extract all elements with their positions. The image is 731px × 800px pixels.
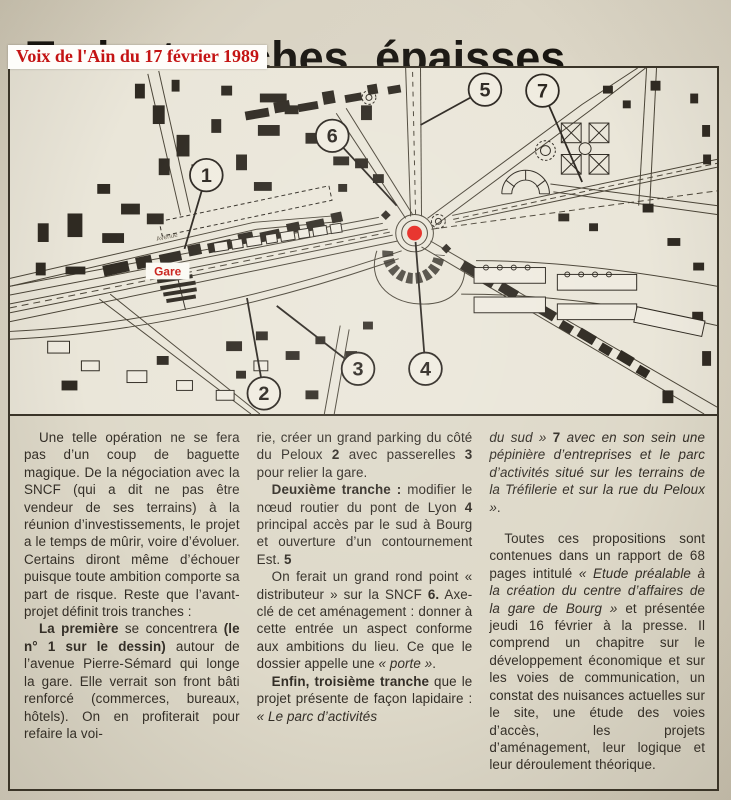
gare-label: Gare bbox=[146, 263, 190, 280]
map-svg: Avenue Gare 1234567 bbox=[10, 68, 717, 414]
avenue-street-label: Avenue bbox=[156, 232, 179, 243]
article-paragraph: La première se concentrera (le n° 1 sur … bbox=[24, 620, 240, 742]
marker-3-number: 3 bbox=[353, 359, 364, 381]
press-stamp: Voix de l'Ain du 17 février 1989 bbox=[8, 45, 267, 69]
gare-label-text: Gare bbox=[154, 264, 182, 278]
red-dot-marker bbox=[407, 226, 422, 241]
article-paragraph: Deuxième tranche : modifier le nœud rout… bbox=[257, 481, 473, 568]
article-columns: Une telle opération ne se fera pas d’un … bbox=[10, 418, 717, 789]
marker-5-number: 5 bbox=[479, 80, 490, 102]
newspaper-scan: Trois tranches épaisses Voix de l'Ain du… bbox=[0, 0, 731, 800]
column-1: Une telle opération ne se fera pas d’un … bbox=[24, 429, 240, 783]
article-paragraph: Enfin, troisième tranche que le projet p… bbox=[257, 673, 473, 725]
article-paragraph: Toutes ces propositions sont contenues d… bbox=[489, 530, 705, 774]
garden-features bbox=[362, 91, 611, 279]
building-blocks bbox=[36, 80, 711, 403]
marker-4-leader bbox=[416, 242, 426, 369]
marker-6-number: 6 bbox=[327, 126, 338, 148]
marker-1-number: 1 bbox=[201, 165, 212, 187]
article-paragraph: rie, créer un grand parking du côté du P… bbox=[257, 429, 473, 481]
marker-2-number: 2 bbox=[258, 383, 269, 405]
column-3: du sud » 7 avec en son sein une pépinièr… bbox=[489, 429, 705, 783]
column-2: rie, créer un grand parking du côté du P… bbox=[257, 429, 473, 783]
article-frame: Avenue Gare 1234567 Une telle opération … bbox=[8, 66, 719, 791]
article-paragraph: On ferait un grand rond point « distribu… bbox=[257, 568, 473, 672]
map-panel: Avenue Gare 1234567 bbox=[10, 68, 717, 416]
marker-4-number: 4 bbox=[420, 359, 431, 381]
article-paragraph: Une telle opération ne se fera pas d’un … bbox=[24, 429, 240, 620]
marker-7-number: 7 bbox=[537, 81, 548, 103]
article-paragraph: du sud » 7 avec en son sein une pépinièr… bbox=[489, 429, 705, 516]
